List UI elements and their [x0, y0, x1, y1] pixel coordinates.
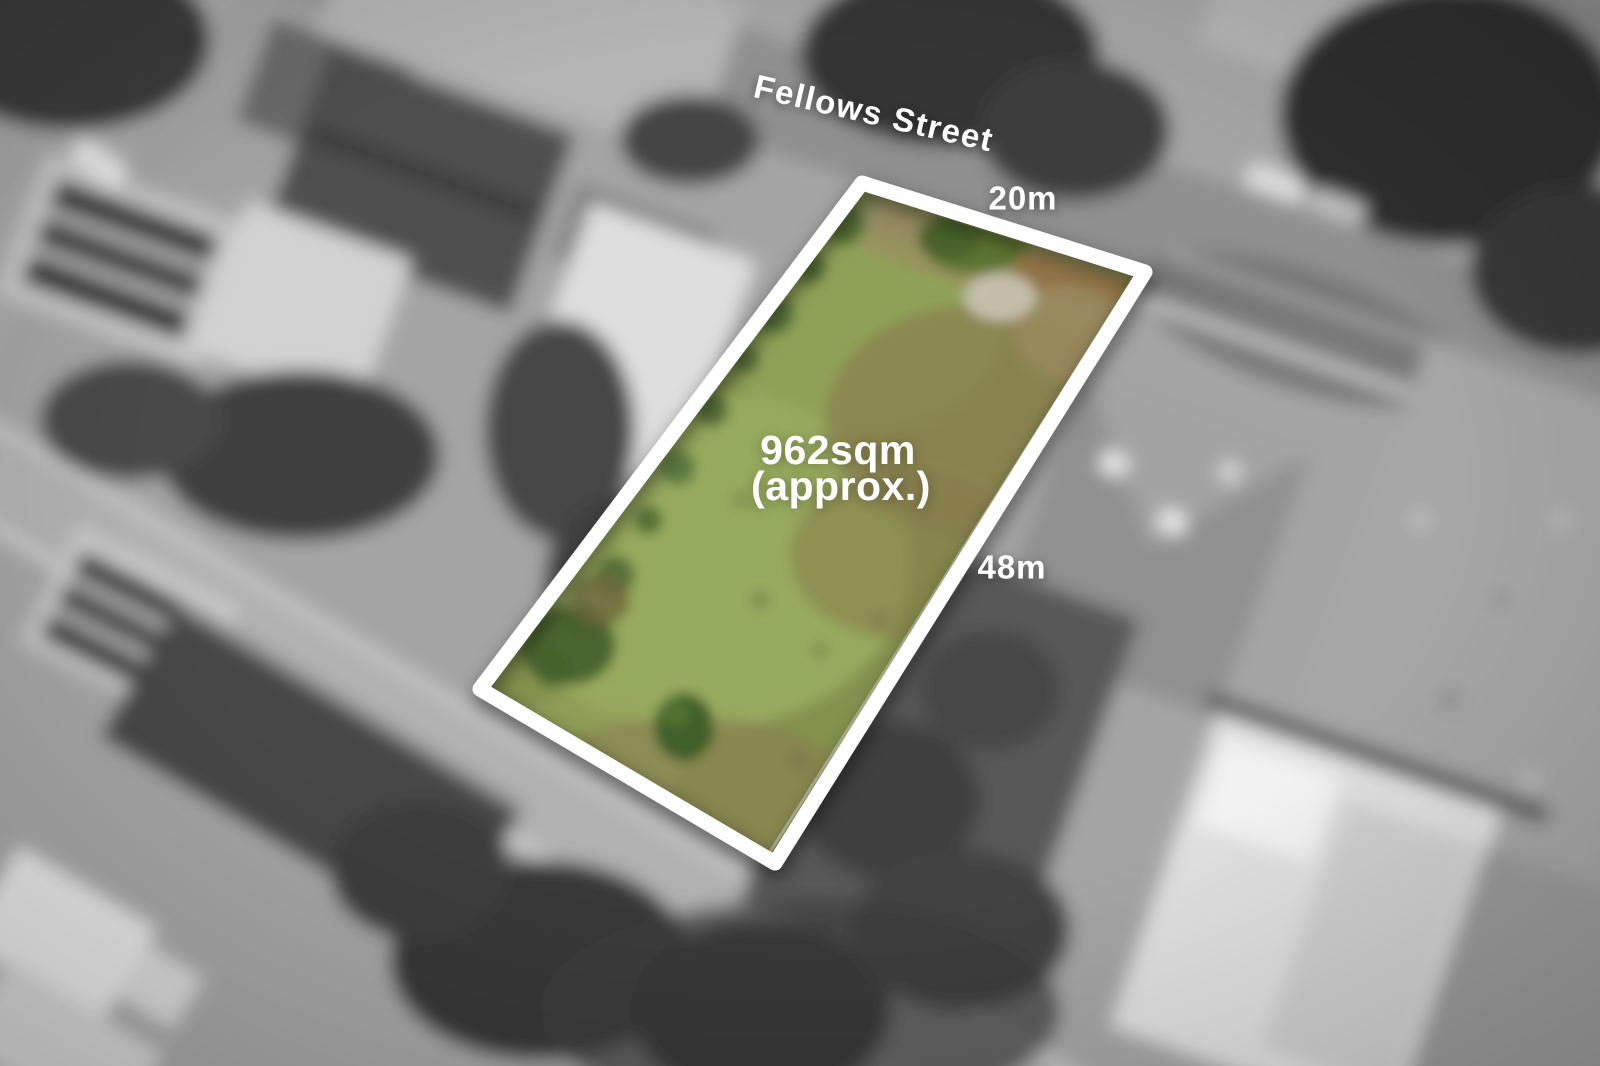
frontage-dimension-label: 20m	[988, 180, 1057, 217]
vignette-overlay	[0, 0, 1600, 1066]
area-qualifier-label: (approx.)	[751, 463, 931, 509]
depth-dimension-label: 48m	[977, 549, 1046, 586]
aerial-photo-canvas: Fellows Street 20m 48m 962sqm (approx.)	[0, 0, 1600, 1066]
aerial-photo: Fellows Street 20m 48m 962sqm (approx.)	[0, 0, 1600, 1066]
